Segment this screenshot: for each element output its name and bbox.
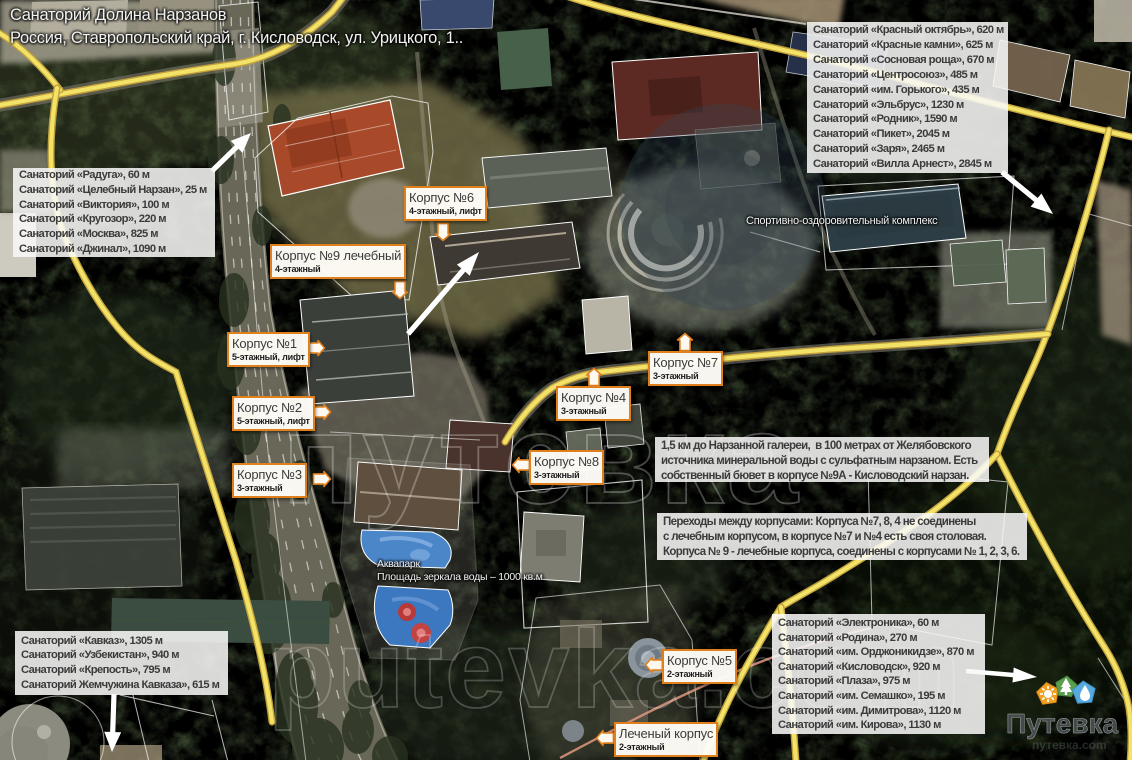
svg-text:Путевка: Путевка xyxy=(1006,708,1119,739)
svg-text:путевка.com: путевка.com xyxy=(1032,738,1107,752)
